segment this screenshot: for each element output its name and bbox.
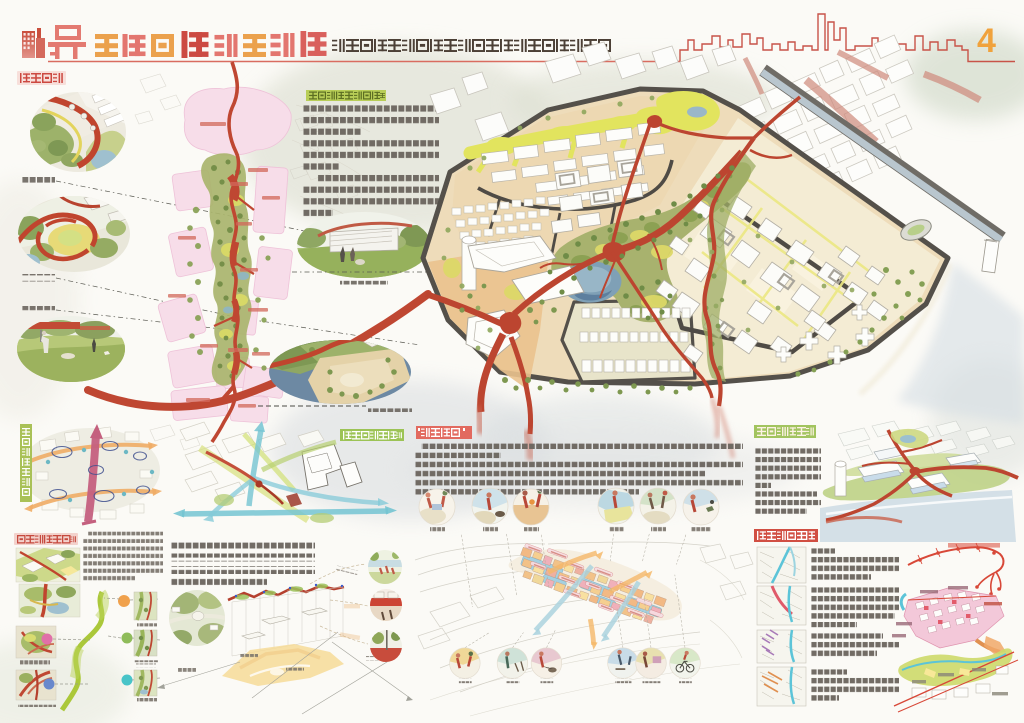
svg-text:4: 4 [977,22,996,60]
